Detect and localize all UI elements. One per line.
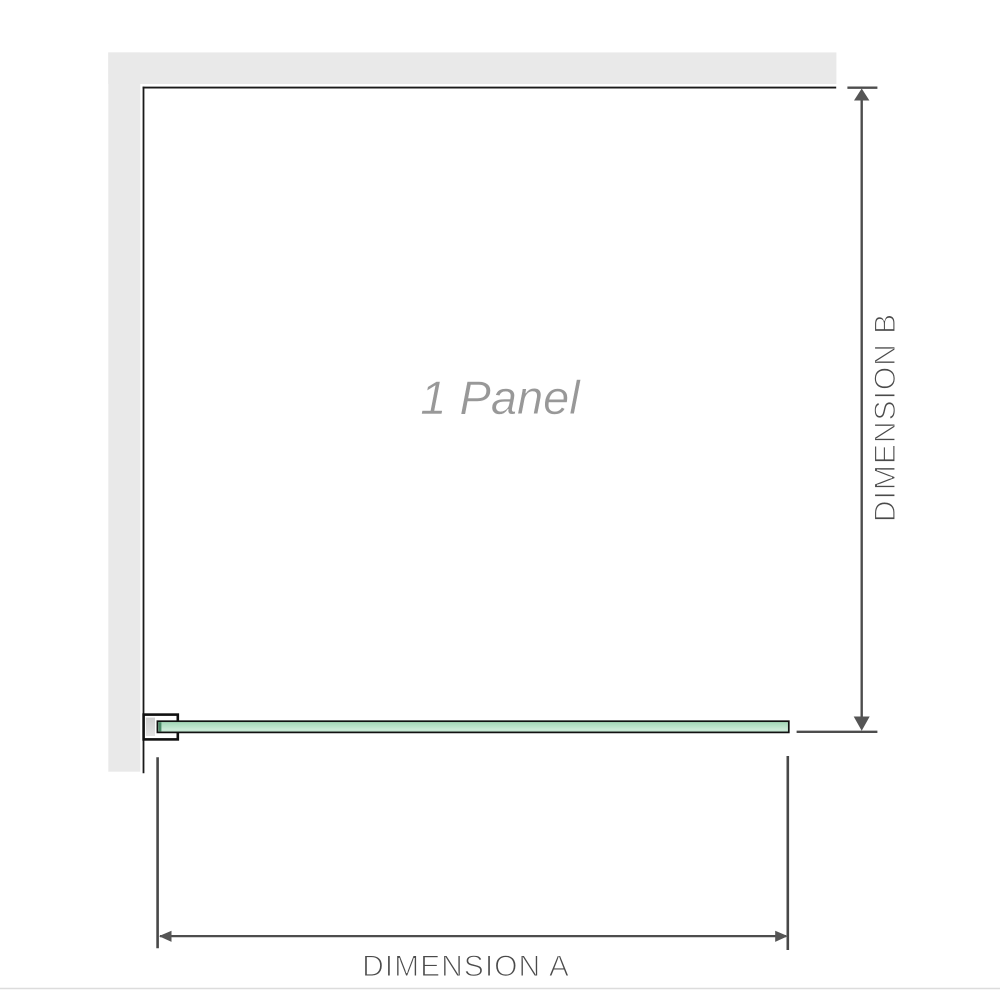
svg-text:DIMENSION B: DIMENSION B: [869, 313, 902, 522]
svg-text:DIMENSION A: DIMENSION A: [362, 950, 570, 983]
svg-text:1 Panel: 1 Panel: [420, 371, 581, 424]
